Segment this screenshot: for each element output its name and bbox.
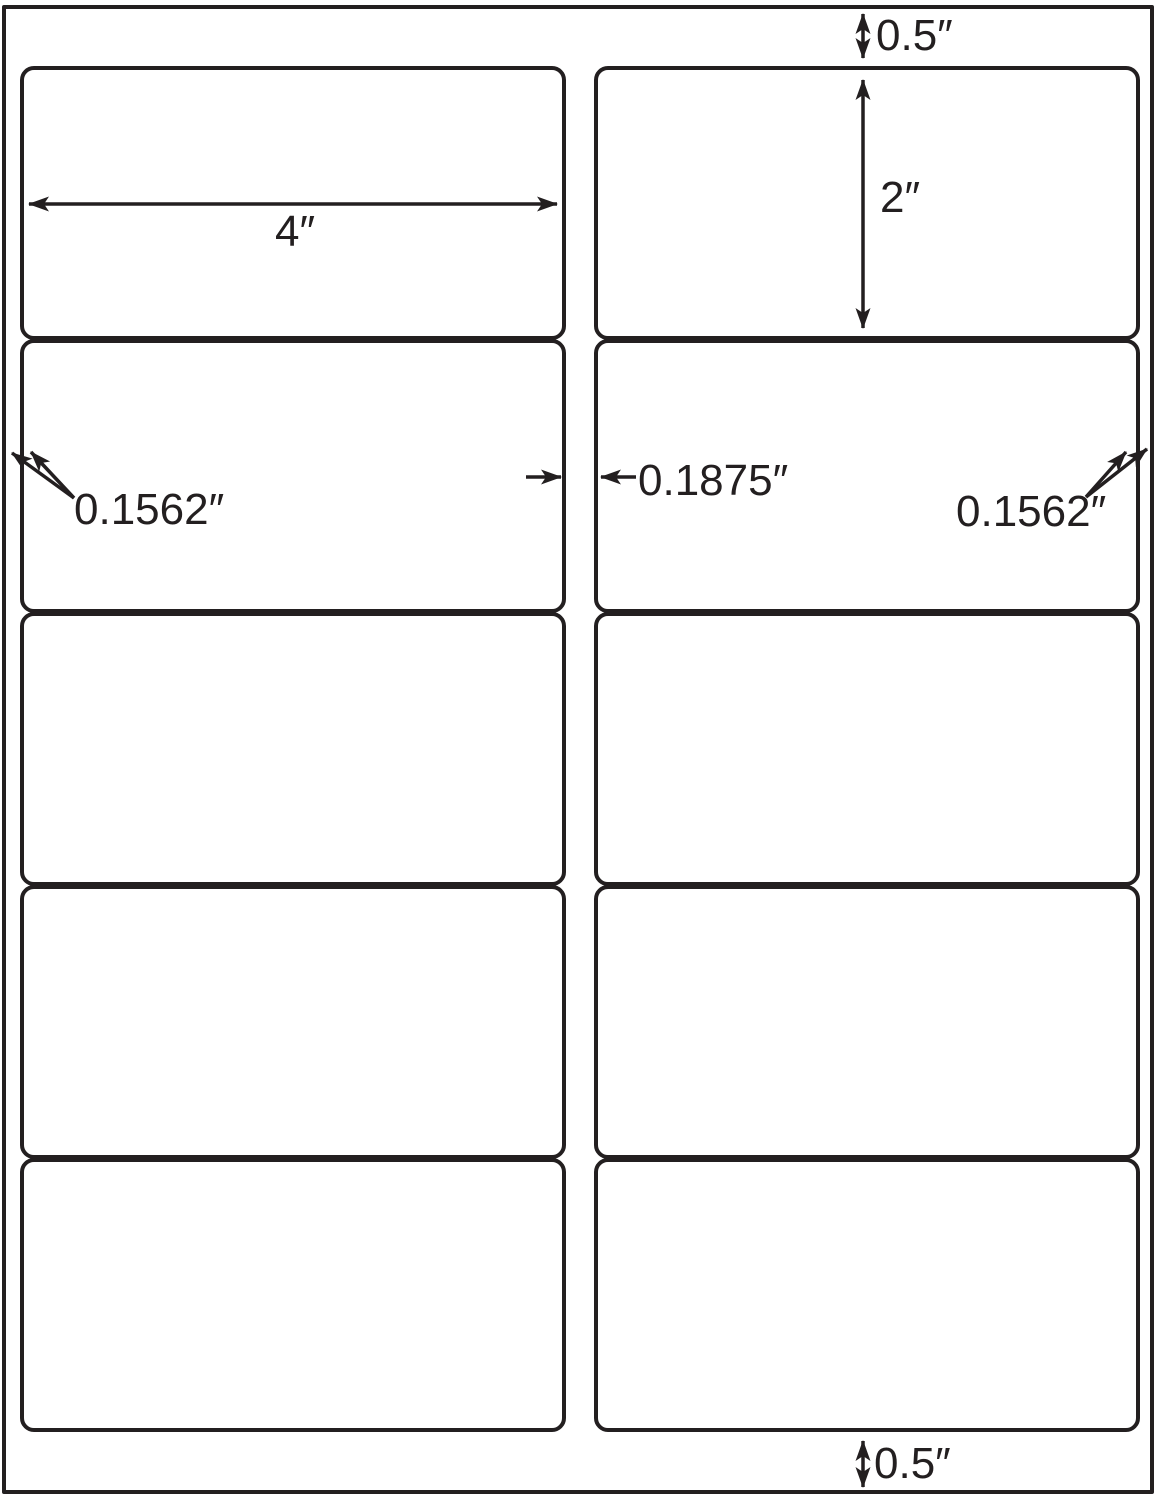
- label-cell: [594, 1158, 1140, 1432]
- left-margin-dimension: 0.1562″: [74, 488, 224, 532]
- label-cell: [20, 1158, 566, 1432]
- label-cell: [20, 66, 566, 340]
- label-cell: [594, 612, 1140, 886]
- label-cell: [594, 885, 1140, 1159]
- label-cell: [20, 612, 566, 886]
- bottom-margin-dimension: 0.5″: [874, 1442, 951, 1486]
- top-margin-dimension: 0.5″: [876, 14, 953, 58]
- label-cell: [20, 339, 566, 613]
- label-height-dimension: 2″: [880, 176, 920, 220]
- center-gap-dimension: 0.1875″: [638, 459, 788, 503]
- label-width-dimension: 4″: [250, 210, 340, 254]
- label-cell: [594, 66, 1140, 340]
- right-margin-dimension: 0.1562″: [956, 490, 1106, 534]
- label-cell: [20, 885, 566, 1159]
- label-template-diagram: 0.5″ 4″ 2″ 0.1562″ 0.1875″ 0.1562″ 0.5″: [0, 0, 1159, 1500]
